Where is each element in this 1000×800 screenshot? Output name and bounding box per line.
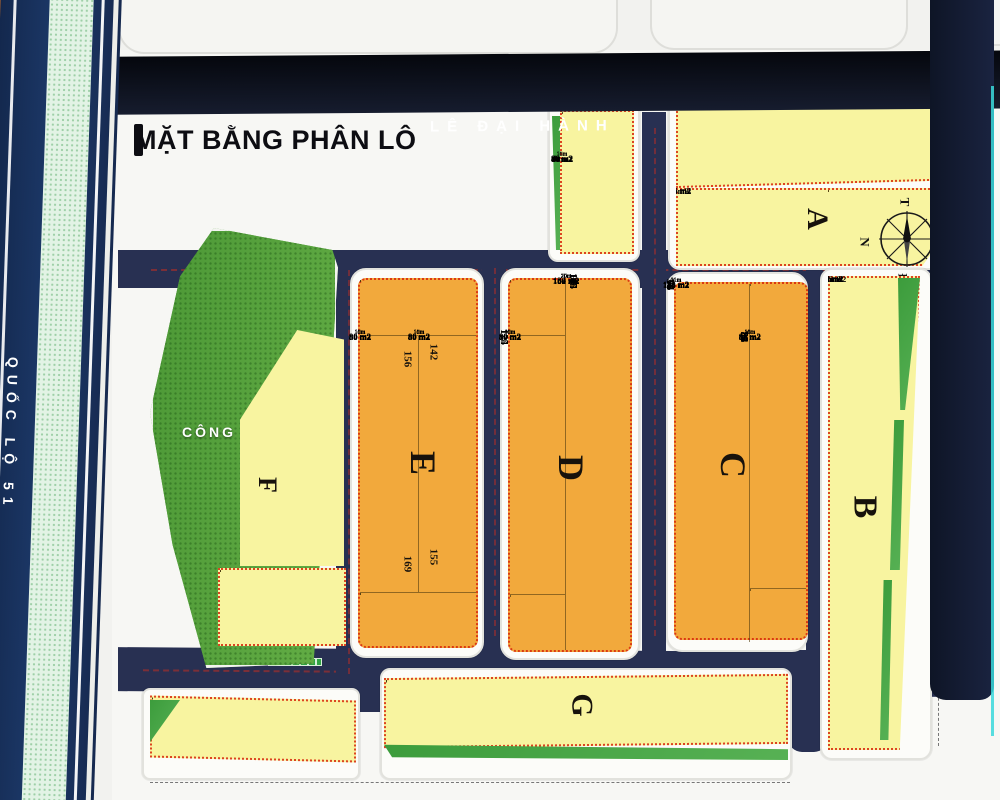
lot: 95 m278 — [750, 284, 751, 286]
block-f-bottom-row: 196100 m220m100 m220m100 m220m110 m220m1… — [218, 568, 346, 646]
lot: 92 m220m3 — [562, 112, 563, 114]
lot-number: 155 — [427, 549, 439, 566]
lot-number: 75 — [664, 280, 675, 291]
block-g: 132 m220m209100 m220m100 m220m100 m220m1… — [384, 674, 788, 748]
street-label-top: LÊ ĐẠI HÀNH — [430, 117, 615, 135]
lot-number: 156 — [402, 351, 414, 368]
compass-icon — [876, 208, 938, 270]
road-right — [930, 0, 994, 700]
block-b-letter: B — [847, 495, 881, 518]
lot-number: 8 — [550, 156, 561, 161]
site-plan: CÔNG VIÊN 1100 m220m100 m220m92 m220m3 8… — [0, 0, 1000, 800]
lot: 106 m2170 — [360, 593, 361, 595]
lot-number: 115 — [567, 273, 578, 288]
lot-dimension: 16m — [744, 330, 755, 336]
lot: 85 m2132 — [510, 595, 511, 597]
compass-south-label: N — [857, 237, 873, 246]
road-quoc-lo-51: QUỐC LỘ 51 — [0, 0, 122, 800]
title-text: MẶT BẰNG PHÂN LÔ — [134, 125, 416, 156]
road-median-mint — [21, 0, 94, 800]
lot-dimension: 16m — [505, 330, 516, 336]
block-e: 106 m2136a95 m295 m295 m295 m2106 m2141a… — [358, 278, 478, 648]
boundary-dashed-line-bottom — [150, 782, 790, 783]
lot: 119 — [510, 280, 511, 282]
road-le-dai-hanh: LÊ ĐẠI HÀNH — [0, 51, 1000, 116]
lot-number: 169 — [402, 556, 414, 573]
block-bottom-left: 170 m218.5m19792.5 m218.5m92.5 m218.5m92… — [150, 695, 356, 762]
block-d: 94 m2116a85 m285 m2118a119 80 m216m80 m2… — [508, 278, 632, 652]
lot-number: 142 — [427, 344, 439, 361]
lot: 132 m220m231 — [386, 680, 387, 682]
block-d-letter: D — [553, 455, 589, 481]
block-e-letter: E — [405, 451, 441, 475]
lot: 132 m220m — [828, 190, 829, 192]
block-g-letter: G — [567, 693, 597, 717]
block-c: 140 m221m56105 m221m105 m221m105 m221m10… — [674, 282, 808, 640]
pad-top-2 — [650, 0, 908, 50]
road-vertical-3 — [642, 112, 666, 652]
lot-dimension: 16m — [355, 330, 366, 336]
lot: 95 m293 — [750, 589, 751, 591]
block-c-letter: C — [715, 452, 751, 478]
compass-west-label: T — [896, 198, 912, 207]
lot-dimension: 16m — [414, 330, 425, 336]
lot: 189 — [220, 570, 221, 572]
pad-top-1 — [118, 0, 618, 54]
cyan-boundary-line — [991, 86, 994, 736]
block-a-letter: A — [802, 208, 832, 230]
lot: 208 — [152, 698, 153, 700]
block-f-letter: F — [254, 477, 280, 493]
lot: 106 m2141a — [360, 280, 361, 282]
